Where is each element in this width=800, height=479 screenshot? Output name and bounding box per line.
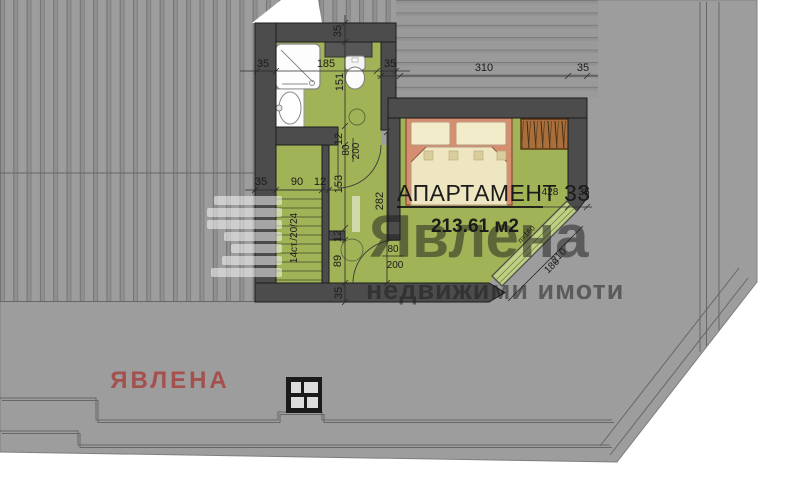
dim-35-bath-right: 35 xyxy=(384,58,396,70)
wall-partition xyxy=(322,145,329,283)
corner-brand-text: ЯВЛЕНА xyxy=(110,367,230,394)
watermark-brand: Явлена xyxy=(369,203,589,270)
wall-bedroom-top xyxy=(388,98,587,118)
roof-horizontal-seams xyxy=(396,0,598,98)
roof-vertical-seams xyxy=(0,0,255,302)
dim-35-stairs: 35 xyxy=(255,176,267,188)
dim-12-a: 12 xyxy=(333,133,345,145)
dim-35-bottom-v: 35 xyxy=(333,287,345,299)
watermark-divider-bar xyxy=(352,196,360,232)
stairs-note-label: 14ст./20/24 xyxy=(289,212,300,263)
watermark-tagline: недвижими имоти xyxy=(366,275,624,305)
dim-35-bed-right: 35 xyxy=(577,62,589,74)
dim-90: 90 xyxy=(291,176,303,188)
bed-pillow-left xyxy=(411,122,450,145)
floorplan-svg: ЯВЛЕНА 14ст./20/24 xyxy=(0,0,800,479)
wall-bath-bottom xyxy=(276,127,338,145)
dim-12-b: 12 xyxy=(332,230,344,242)
dim-153: 153 xyxy=(333,175,345,193)
dim-12-stairs: 12 xyxy=(314,176,326,188)
dim-35-bath-left: 35 xyxy=(257,58,269,70)
dim-35-top-v: 35 xyxy=(332,25,344,37)
bed-pillow-right xyxy=(456,122,506,145)
flush-button xyxy=(352,58,358,62)
floorplan-screenshot: ЯВЛЕНА 14ст./20/24 xyxy=(0,0,800,479)
dim-151: 151 xyxy=(334,73,346,91)
toilet-shelf xyxy=(325,42,372,57)
dim-310: 310 xyxy=(475,62,493,74)
skylight-window xyxy=(286,377,322,413)
dim-89: 89 xyxy=(332,255,344,267)
dim-185: 185 xyxy=(317,58,335,70)
door1-height: 200 xyxy=(351,142,362,159)
toilet-bowl xyxy=(346,67,365,89)
sink-tap xyxy=(276,105,282,111)
